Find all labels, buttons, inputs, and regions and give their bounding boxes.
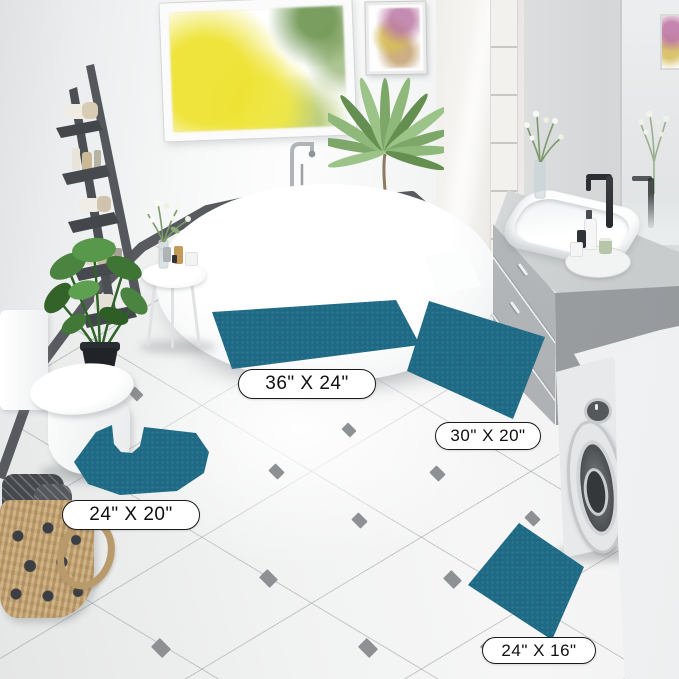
table-leg xyxy=(171,286,174,348)
bathroom-rug-product-photo: 36" X 24" 30" X 20" 24" X 20" 24" X 16" xyxy=(0,0,679,679)
small-black-item xyxy=(172,255,177,263)
vanity-faucet-spout xyxy=(586,178,591,191)
size-label-24x16: 24" X 16" xyxy=(482,637,596,664)
palm-plant xyxy=(328,60,444,205)
white-jar xyxy=(570,242,583,257)
gray-bottle xyxy=(163,247,171,262)
white-jar xyxy=(185,252,198,266)
floor-plant xyxy=(38,236,156,378)
washer-dial xyxy=(584,398,612,424)
counter-flower-vase xyxy=(522,108,566,200)
size-label-36x24: 36" X 24" xyxy=(238,369,376,399)
vanity-faucet xyxy=(606,176,613,228)
pump-head xyxy=(586,210,592,219)
size-label-24x20: 24" X 20" xyxy=(62,500,200,530)
green-jar xyxy=(599,238,612,254)
size-label-30x20: 30" X 20" xyxy=(435,422,541,450)
